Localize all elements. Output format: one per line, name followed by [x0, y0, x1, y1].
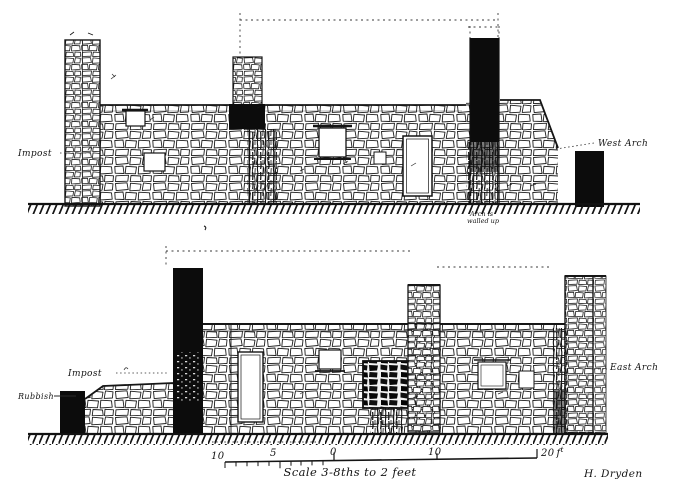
upper-door-opening [403, 136, 432, 196]
upper-elevation: Impost West Arch Arch is walled up [17, 13, 648, 230]
lower-door-opening [238, 352, 263, 422]
scale-caption: Scale 3-8ths to 2 feet [284, 465, 417, 479]
scale-tick-label-10-left: 10 [211, 451, 225, 462]
lower-elevation: Impost Rubbish East Arch [17, 246, 658, 445]
upper-black-tower [466, 38, 500, 205]
upper-impost-label: Impost [17, 149, 52, 159]
lower-mid-pier [408, 285, 440, 432]
east-arch-label: East Arch [609, 363, 658, 373]
lower-black-tower [173, 268, 203, 433]
walled-up-note-line2: walled up [467, 217, 500, 225]
upper-ground [28, 203, 640, 214]
scale-tick-label-0: 0 [330, 447, 337, 458]
lower-left-black-pier [60, 391, 85, 435]
lower-right-pier [565, 276, 606, 433]
scale-tick-label-20ft: 20ft [540, 446, 564, 459]
scale-bar: 10 5 0 10 20ft Scale 3-8ths to 2 feet [211, 442, 564, 479]
lower-ground [28, 433, 608, 445]
scale-tick-label-5: 5 [270, 448, 277, 459]
upper-left-pier [65, 32, 100, 206]
west-arch-label: West Arch [598, 139, 648, 149]
upper-right-black-pier [575, 151, 604, 207]
drawing-sheet: Impost West Arch Arch is walled up [0, 0, 685, 501]
lower-dotted-restoration-lines [166, 246, 552, 268]
rubbish-label: Rubbish [17, 392, 54, 401]
lower-impost-label: Impost [67, 369, 102, 379]
signature: H. Dryden [583, 468, 643, 480]
upper-dotted-restoration-lines [240, 13, 500, 60]
elevation-drawing-svg: Impost West Arch Arch is walled up [0, 0, 685, 501]
scale-tick-label-10-right: 10 [428, 447, 442, 458]
